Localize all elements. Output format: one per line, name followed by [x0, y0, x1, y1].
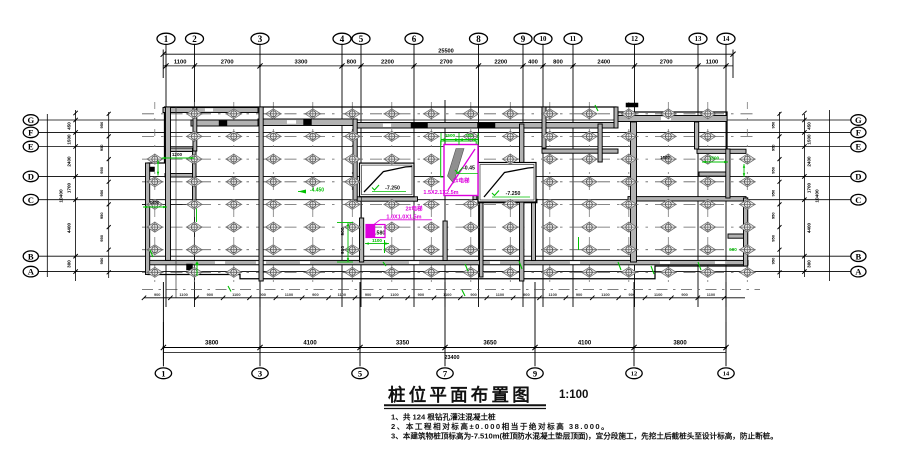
svg-text:800: 800	[347, 60, 357, 66]
svg-text:1: 1	[161, 368, 165, 378]
svg-text:-0.45: -0.45	[463, 166, 475, 172]
svg-text:950: 950	[99, 189, 104, 196]
svg-text:C: C	[28, 195, 34, 205]
svg-text:950: 950	[771, 189, 776, 196]
svg-text:1500: 1500	[709, 156, 720, 161]
svg-text:1100: 1100	[707, 292, 715, 297]
svg-text:1: 1	[164, 34, 169, 44]
svg-text:300: 300	[67, 260, 72, 268]
svg-text:3300: 3300	[295, 60, 308, 66]
svg-text:G: G	[27, 115, 34, 125]
svg-text:2700: 2700	[440, 60, 453, 66]
svg-text:3、本建筑物桩顶标高为-7.510m(桩顶防水混凝土垫层顶面: 3、本建筑物桩顶标高为-7.510m(桩顶防水混凝土垫层顶面)，宜分段施工，先挖…	[391, 430, 778, 440]
svg-text:9: 9	[521, 34, 526, 44]
svg-text:-7.250: -7.250	[506, 191, 521, 197]
svg-text:1100: 1100	[232, 292, 240, 297]
svg-text:950: 950	[771, 121, 776, 128]
svg-text:4400: 4400	[806, 222, 811, 233]
svg-text:1100: 1100	[706, 60, 719, 66]
svg-text:-7.250: -7.250	[385, 185, 400, 191]
svg-text:2700: 2700	[660, 60, 673, 66]
svg-text:900: 900	[154, 292, 161, 297]
svg-text:3800: 3800	[673, 341, 687, 347]
svg-text:4100: 4100	[303, 341, 317, 347]
svg-text:1500: 1500	[660, 155, 670, 160]
svg-text:600: 600	[729, 247, 737, 252]
svg-text:1400: 1400	[150, 200, 160, 205]
svg-text:3: 3	[258, 34, 263, 44]
svg-text:10: 10	[540, 36, 547, 43]
svg-text:10400: 10400	[59, 189, 65, 203]
svg-text:900: 900	[523, 292, 530, 297]
svg-text:950: 950	[771, 144, 776, 151]
svg-text:2200: 2200	[381, 60, 394, 66]
svg-text:950: 950	[99, 166, 104, 173]
svg-text:A: A	[855, 267, 862, 277]
svg-text:900: 900	[629, 292, 636, 297]
svg-text:950: 950	[771, 257, 776, 264]
svg-text:11: 11	[570, 36, 577, 43]
svg-text:D: D	[855, 172, 861, 182]
svg-text:1500: 1500	[806, 134, 811, 145]
svg-text:1100: 1100	[372, 238, 382, 243]
svg-text:4: 4	[340, 34, 345, 44]
svg-text:1#电梯: 1#电梯	[452, 177, 470, 185]
svg-text:950: 950	[99, 144, 104, 151]
svg-text:900: 900	[340, 227, 346, 235]
svg-text:13: 13	[695, 36, 702, 43]
svg-text:950: 950	[771, 212, 776, 219]
svg-text:1500: 1500	[67, 134, 72, 145]
svg-text:5: 5	[358, 368, 362, 378]
svg-text:F: F	[856, 128, 861, 138]
svg-text:2400: 2400	[67, 156, 72, 167]
svg-text:900: 900	[259, 292, 266, 297]
svg-text:A: A	[28, 267, 35, 277]
svg-text:14: 14	[723, 36, 730, 43]
svg-text:14: 14	[723, 371, 730, 378]
svg-text:400: 400	[528, 60, 538, 66]
svg-text:900: 900	[576, 292, 583, 297]
svg-text:1100: 1100	[390, 292, 398, 297]
svg-text:950: 950	[99, 257, 104, 264]
svg-text:1100: 1100	[654, 292, 662, 297]
svg-text:9: 9	[533, 368, 537, 378]
svg-text:2400: 2400	[597, 60, 610, 66]
svg-text:1100: 1100	[174, 60, 187, 66]
svg-text:900: 900	[207, 292, 214, 297]
svg-text:B: B	[28, 251, 34, 261]
svg-text:B: B	[856, 251, 862, 261]
svg-text:2、本工程相对标高±0.000相当于绝对标高 38.000。: 2、本工程相对标高±0.000相当于绝对标高 38.000。	[391, 421, 610, 431]
svg-text:2200: 2200	[494, 60, 507, 66]
svg-text:E: E	[28, 142, 34, 152]
svg-text:900: 900	[418, 292, 425, 297]
svg-text:900: 900	[312, 292, 319, 297]
svg-text:8: 8	[476, 34, 481, 44]
svg-text:3800: 3800	[205, 341, 219, 347]
svg-text:450: 450	[67, 122, 72, 130]
svg-text:800: 800	[553, 60, 563, 66]
svg-text:3650: 3650	[483, 341, 497, 347]
svg-text:1200: 1200	[172, 152, 183, 157]
svg-text:1100: 1100	[179, 292, 187, 297]
svg-text:25500: 25500	[438, 48, 454, 54]
svg-text:4100: 4100	[578, 341, 592, 347]
svg-text:4400: 4400	[67, 222, 72, 233]
svg-text:23400: 23400	[445, 355, 460, 361]
svg-text:F: F	[28, 128, 33, 138]
svg-text:900: 900	[340, 246, 346, 254]
svg-text:7: 7	[443, 368, 448, 378]
svg-text:300: 300	[806, 260, 811, 268]
svg-text:12: 12	[631, 36, 638, 43]
svg-text:700: 700	[465, 133, 473, 138]
svg-text:10400: 10400	[815, 189, 821, 203]
svg-text:1100: 1100	[601, 292, 609, 297]
svg-text:900: 900	[470, 292, 477, 297]
svg-text:D: D	[28, 172, 34, 182]
svg-text:桩位平面布置图: 桩位平面布置图	[388, 385, 533, 405]
svg-text:-4.450: -4.450	[310, 188, 324, 194]
svg-text:1100: 1100	[496, 292, 504, 297]
svg-text:1100: 1100	[443, 292, 451, 297]
svg-text:1、共 124 根钻孔灌注混凝土桩: 1、共 124 根钻孔灌注混凝土桩	[391, 412, 496, 422]
svg-text:E: E	[856, 142, 862, 152]
svg-text:2#电梯: 2#电梯	[405, 205, 423, 213]
svg-text:950: 950	[99, 121, 104, 128]
svg-text:1100: 1100	[285, 292, 293, 297]
svg-text:1500: 1500	[445, 133, 456, 138]
svg-text:900: 900	[365, 292, 372, 297]
svg-text:1100: 1100	[338, 292, 346, 297]
svg-text:C: C	[855, 195, 861, 205]
svg-text:1100: 1100	[548, 292, 556, 297]
svg-text:2: 2	[192, 34, 197, 44]
svg-text:450: 450	[806, 122, 811, 130]
svg-text:2400: 2400	[806, 156, 811, 167]
svg-text:3: 3	[258, 368, 262, 378]
svg-text:950: 950	[771, 166, 776, 173]
svg-text:5: 5	[359, 34, 364, 44]
svg-text:950: 950	[99, 212, 104, 219]
svg-text:G: G	[855, 115, 862, 125]
svg-text:950: 950	[99, 234, 104, 241]
svg-text:2700: 2700	[221, 60, 234, 66]
svg-text:900: 900	[681, 292, 688, 297]
svg-text:12: 12	[631, 371, 637, 378]
svg-text:1:100: 1:100	[559, 389, 588, 401]
svg-text:1700: 1700	[67, 182, 72, 193]
svg-text:950: 950	[771, 234, 776, 241]
svg-text:1.5X2.1X2.5m: 1.5X2.1X2.5m	[423, 190, 458, 196]
svg-text:3350: 3350	[396, 341, 410, 347]
svg-text:6: 6	[412, 34, 417, 44]
svg-text:1700: 1700	[806, 182, 811, 193]
